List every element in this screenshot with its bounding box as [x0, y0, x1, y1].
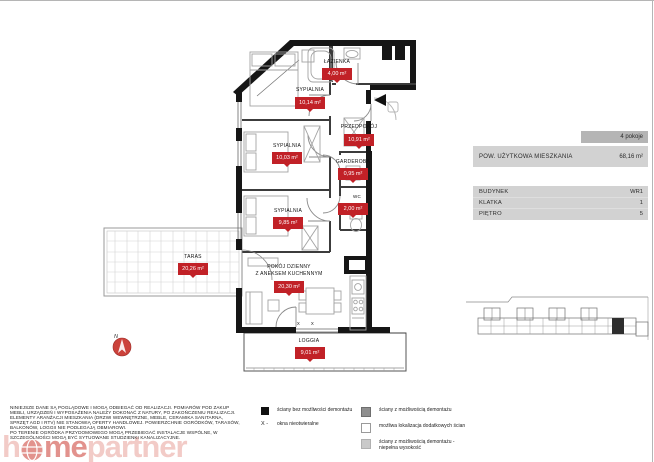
- staircase-value: 1: [640, 200, 643, 206]
- area-badge-sypialnia-1: 10,14 m²: [295, 97, 325, 109]
- legend-column-2: ściany z możliwością demontażu możliwa l…: [361, 407, 471, 457]
- north-compass-icon: N: [113, 334, 131, 356]
- legend-label: ściany z możliwością demontażu - niepełn…: [379, 439, 471, 451]
- legend-label: ściany bez możliwości demontażu: [277, 407, 352, 413]
- building-info-table: BUDYNEK WR1 KLATKA 1 PIĘTRO 5: [473, 186, 648, 220]
- area-badge-garderoba: 0,95 m²: [338, 168, 368, 180]
- building-label: BUDYNEK: [479, 189, 508, 195]
- usable-area-band: POW. UŻYTKOWA MIESZKANIA 68,16 m²: [473, 146, 648, 167]
- area-badge-lazienka: 4,00 m²: [322, 68, 352, 80]
- building-value: WR1: [630, 189, 643, 195]
- area-badge-przedpokoj: 10,91 m²: [344, 134, 374, 146]
- legend-label: możliwa lokalizacja dodatkowych ścian: [379, 423, 465, 429]
- terrace-grid: [107, 231, 239, 293]
- area-badge-sypialnia-3: 9,85 m²: [273, 217, 303, 229]
- staircase-label: KLATKA: [479, 200, 502, 206]
- window-x-markers: x x: [297, 321, 314, 327]
- area-badge-loggia: 9,01 m²: [295, 347, 325, 359]
- room-label-pokoj-dzienny: POKÓJ DZIENNY Z ANEKSEM KUCHENNYM: [256, 264, 323, 277]
- floor-row: PIĘTRO 5: [473, 208, 648, 219]
- disclaimer-text: NINIEJSZE DANE SĄ POGLĄDOWE I MOGĄ ODBIE…: [10, 405, 260, 440]
- optional-wall-swatch: [361, 423, 371, 433]
- window-x-2: x: [311, 321, 314, 327]
- room-label-pokoj-dzienny-line2: Z ANEKSEM KUCHENNYM: [256, 271, 323, 278]
- legend-item-partial-height-walls: ściany z możliwością demontażu - niepełn…: [361, 439, 471, 451]
- area-badge-taras: 20,26 m²: [178, 263, 208, 275]
- fixed-window-symbol: X -: [261, 421, 269, 427]
- floor-label: PIĘTRO: [479, 211, 502, 217]
- floor-value: 5: [640, 211, 643, 217]
- room-label-sypialnia-3: SYPIALNIA: [274, 208, 302, 215]
- room-label-lazienka: ŁAZIENKA: [324, 59, 350, 66]
- room-label-garderoba: GARDEROBA: [336, 159, 370, 166]
- window-x-1: x: [297, 321, 300, 327]
- area-badge-pokoj-dzienny: 20,30 m²: [274, 281, 304, 293]
- solid-wall-swatch: [261, 407, 269, 415]
- terrace: [104, 228, 242, 296]
- room-label-taras: TARAS: [184, 254, 202, 261]
- legend-item-fixed-windows: X - okna nieotwieralne: [261, 421, 361, 427]
- legend-item-removable-walls: ściany z możliwością demontażu: [361, 407, 471, 417]
- legend-label: okna nieotwieralne: [277, 421, 319, 427]
- partial-height-wall-swatch: [361, 439, 371, 449]
- room-label-loggia: LOGGIA: [299, 338, 320, 345]
- rooms-count-value: 4 pokoje: [620, 134, 643, 140]
- site-plan: [466, 297, 648, 340]
- room-label-sypialnia-1: SYPIALNIA: [296, 87, 324, 94]
- shaft-opening: [349, 260, 365, 270]
- floorplan-page: x x N ŁAZIENKA 4,00: [0, 0, 654, 462]
- room-label-przedpokoj: PRZEDPOKÓJ: [341, 124, 377, 131]
- globe-icon: [21, 439, 43, 461]
- legend-item-solid-walls: ściany bez możliwości demontażu: [261, 407, 361, 415]
- legend-label: ściany z możliwością demontażu: [379, 407, 452, 413]
- usable-area-label: POW. UŻYTKOWA MIESZKANIA: [479, 154, 573, 160]
- area-badge-wc: 2,00 m²: [338, 203, 368, 215]
- area-badge-sypialnia-2: 10,03 m²: [272, 152, 302, 164]
- removable-wall-swatch: [361, 407, 371, 417]
- room-label-sypialnia-2: SYPIALNIA: [273, 143, 301, 150]
- site-plan-highlighted-unit: [612, 318, 624, 334]
- rooms-count-band: 4 pokoje: [581, 131, 648, 143]
- room-label-wc: WC: [353, 194, 361, 201]
- disclaimer-line: SZCZEGÓLNOŚCI MOGĄ BYĆ SYTUOWANE STUDZIE…: [10, 435, 260, 440]
- usable-area-value: 68,16 m²: [619, 154, 643, 160]
- north-label: N: [114, 334, 118, 340]
- legend-column-1: ściany bez możliwości demontażu X - okna…: [261, 407, 361, 433]
- entrance-arrow-icon: [374, 94, 386, 106]
- legend-item-optional-walls: możliwa lokalizacja dodatkowych ścian: [361, 423, 471, 433]
- loggia: [244, 333, 406, 371]
